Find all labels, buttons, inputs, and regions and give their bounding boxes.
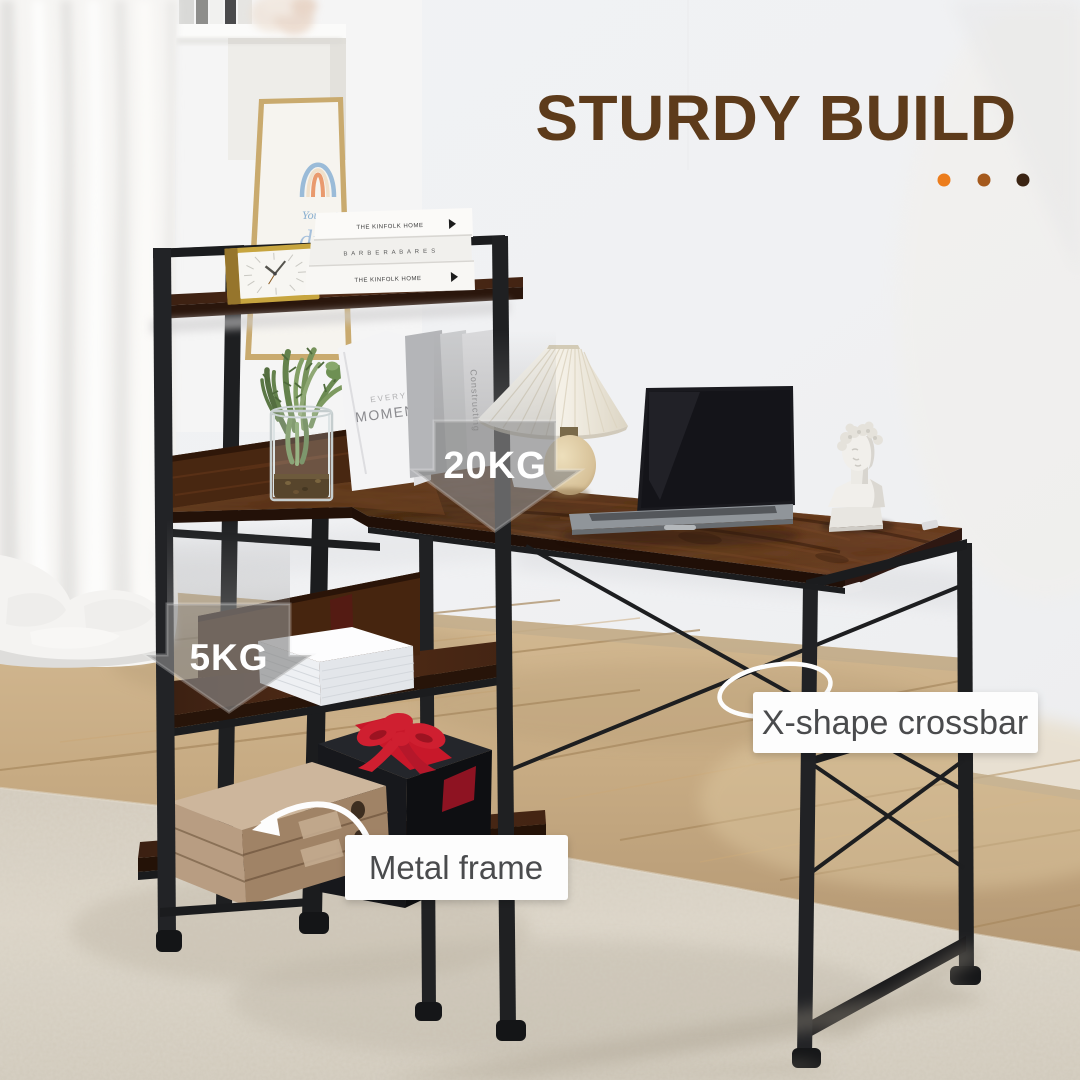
svg-text:X-shape crossbar: X-shape crossbar bbox=[762, 704, 1028, 742]
svg-text:Metal frame: Metal frame bbox=[369, 849, 543, 886]
svg-text:20KG: 20KG bbox=[443, 445, 546, 487]
svg-text:STURDY BUILD: STURDY BUILD bbox=[535, 82, 1016, 154]
svg-text:5KG: 5KG bbox=[189, 637, 268, 678]
